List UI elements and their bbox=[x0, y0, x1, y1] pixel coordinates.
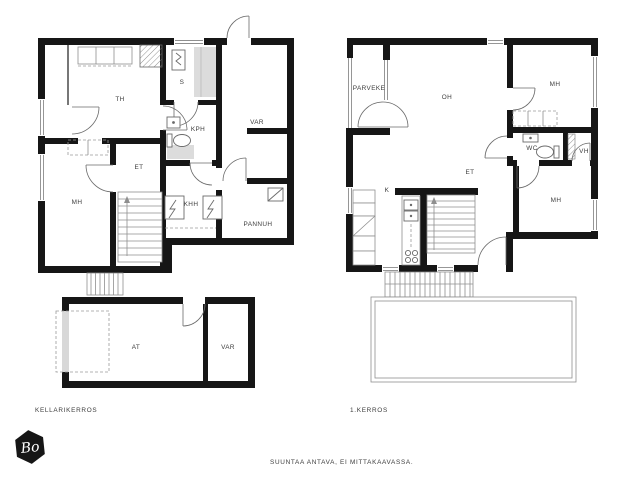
door-arc bbox=[183, 304, 205, 326]
fireplace-icon bbox=[140, 45, 162, 67]
duct-shaft bbox=[568, 134, 575, 159]
room-label-mh-1: MH bbox=[550, 81, 561, 88]
door-arc bbox=[86, 165, 113, 192]
room-label-wc: WC bbox=[526, 145, 537, 152]
terrace bbox=[371, 297, 576, 382]
washing-machine-icon bbox=[165, 196, 184, 219]
caption-1kerros: 1.KERROS bbox=[350, 407, 388, 414]
room-label-pannuh: PANNUH bbox=[244, 221, 273, 228]
window bbox=[37, 154, 46, 201]
room-label-at: AT bbox=[132, 344, 141, 351]
door-arc bbox=[223, 158, 246, 181]
fridge-icon bbox=[353, 216, 375, 236]
window bbox=[174, 37, 204, 46]
door-arc bbox=[227, 16, 249, 38]
room-label-kph: KPH bbox=[191, 126, 205, 133]
door-arc bbox=[358, 102, 408, 127]
logo: Bo bbox=[14, 429, 45, 466]
th-cabinet bbox=[78, 47, 132, 66]
sink-icon bbox=[523, 134, 538, 142]
room-label-var-basement: VAR bbox=[250, 119, 264, 126]
balcony-railing bbox=[349, 58, 388, 128]
sink-icon bbox=[167, 117, 180, 128]
room-label-vh: VH bbox=[579, 148, 589, 155]
caption-kellarikerros: KELLARIKERROS bbox=[35, 407, 97, 414]
first-floor-plan: PARVEKE OH MH WC VH ET K MH bbox=[345, 37, 599, 382]
basement-plan: TH S KPH VAR ET MH KHH PANNUH AT VAR bbox=[37, 16, 294, 388]
room-label-oh: OH bbox=[442, 94, 452, 101]
garage-door bbox=[62, 311, 69, 372]
logo-text: Bo bbox=[19, 439, 40, 457]
window bbox=[487, 37, 504, 46]
room-label-khh: KHH bbox=[184, 201, 199, 208]
disclaimer-text: SUUNTAA ANTAVA, EI MITTAKAAVASSA. bbox=[270, 459, 413, 466]
exterior-steps bbox=[87, 273, 123, 295]
room-label-et-1f: ET bbox=[466, 169, 475, 176]
wardrobe bbox=[513, 111, 557, 126]
door-arc bbox=[478, 237, 506, 265]
door-arc bbox=[517, 166, 539, 188]
garage-building bbox=[56, 297, 255, 388]
boiler-icon bbox=[268, 188, 283, 201]
room-label-k: K bbox=[385, 187, 390, 194]
closet-partition bbox=[67, 45, 69, 105]
door-arc bbox=[513, 88, 535, 110]
window bbox=[590, 56, 599, 108]
kitchen-counter bbox=[353, 190, 375, 265]
window bbox=[37, 99, 46, 136]
room-label-parveke: PARVEKE bbox=[353, 85, 385, 92]
door-arc bbox=[72, 107, 99, 134]
door-arc bbox=[190, 163, 212, 185]
dryer-icon bbox=[203, 196, 222, 219]
staircase bbox=[118, 192, 162, 262]
exterior-steps bbox=[385, 272, 473, 297]
staircase bbox=[427, 195, 475, 253]
window bbox=[590, 199, 599, 231]
room-label-mh-2: MH bbox=[551, 197, 562, 204]
room-label-s: S bbox=[180, 79, 185, 86]
room-label-th: TH bbox=[115, 96, 124, 103]
sauna-benches bbox=[194, 47, 216, 97]
sauna-heater-icon bbox=[172, 50, 185, 70]
room-label-et-basement: ET bbox=[135, 164, 144, 171]
basement-interior-walls bbox=[45, 45, 287, 266]
kitchen-island bbox=[402, 196, 420, 265]
toilet-icon bbox=[537, 146, 560, 158]
floor-plan-page: TH S KPH VAR ET MH KHH PANNUH AT VAR bbox=[0, 0, 640, 480]
room-label-var-garage: VAR bbox=[221, 344, 235, 351]
room-label-mh-basement: MH bbox=[72, 199, 83, 206]
door-arc bbox=[485, 136, 507, 158]
toilet-icon bbox=[167, 134, 191, 147]
floor-plan-image: TH S KPH VAR ET MH KHH PANNUH AT VAR bbox=[0, 0, 640, 480]
